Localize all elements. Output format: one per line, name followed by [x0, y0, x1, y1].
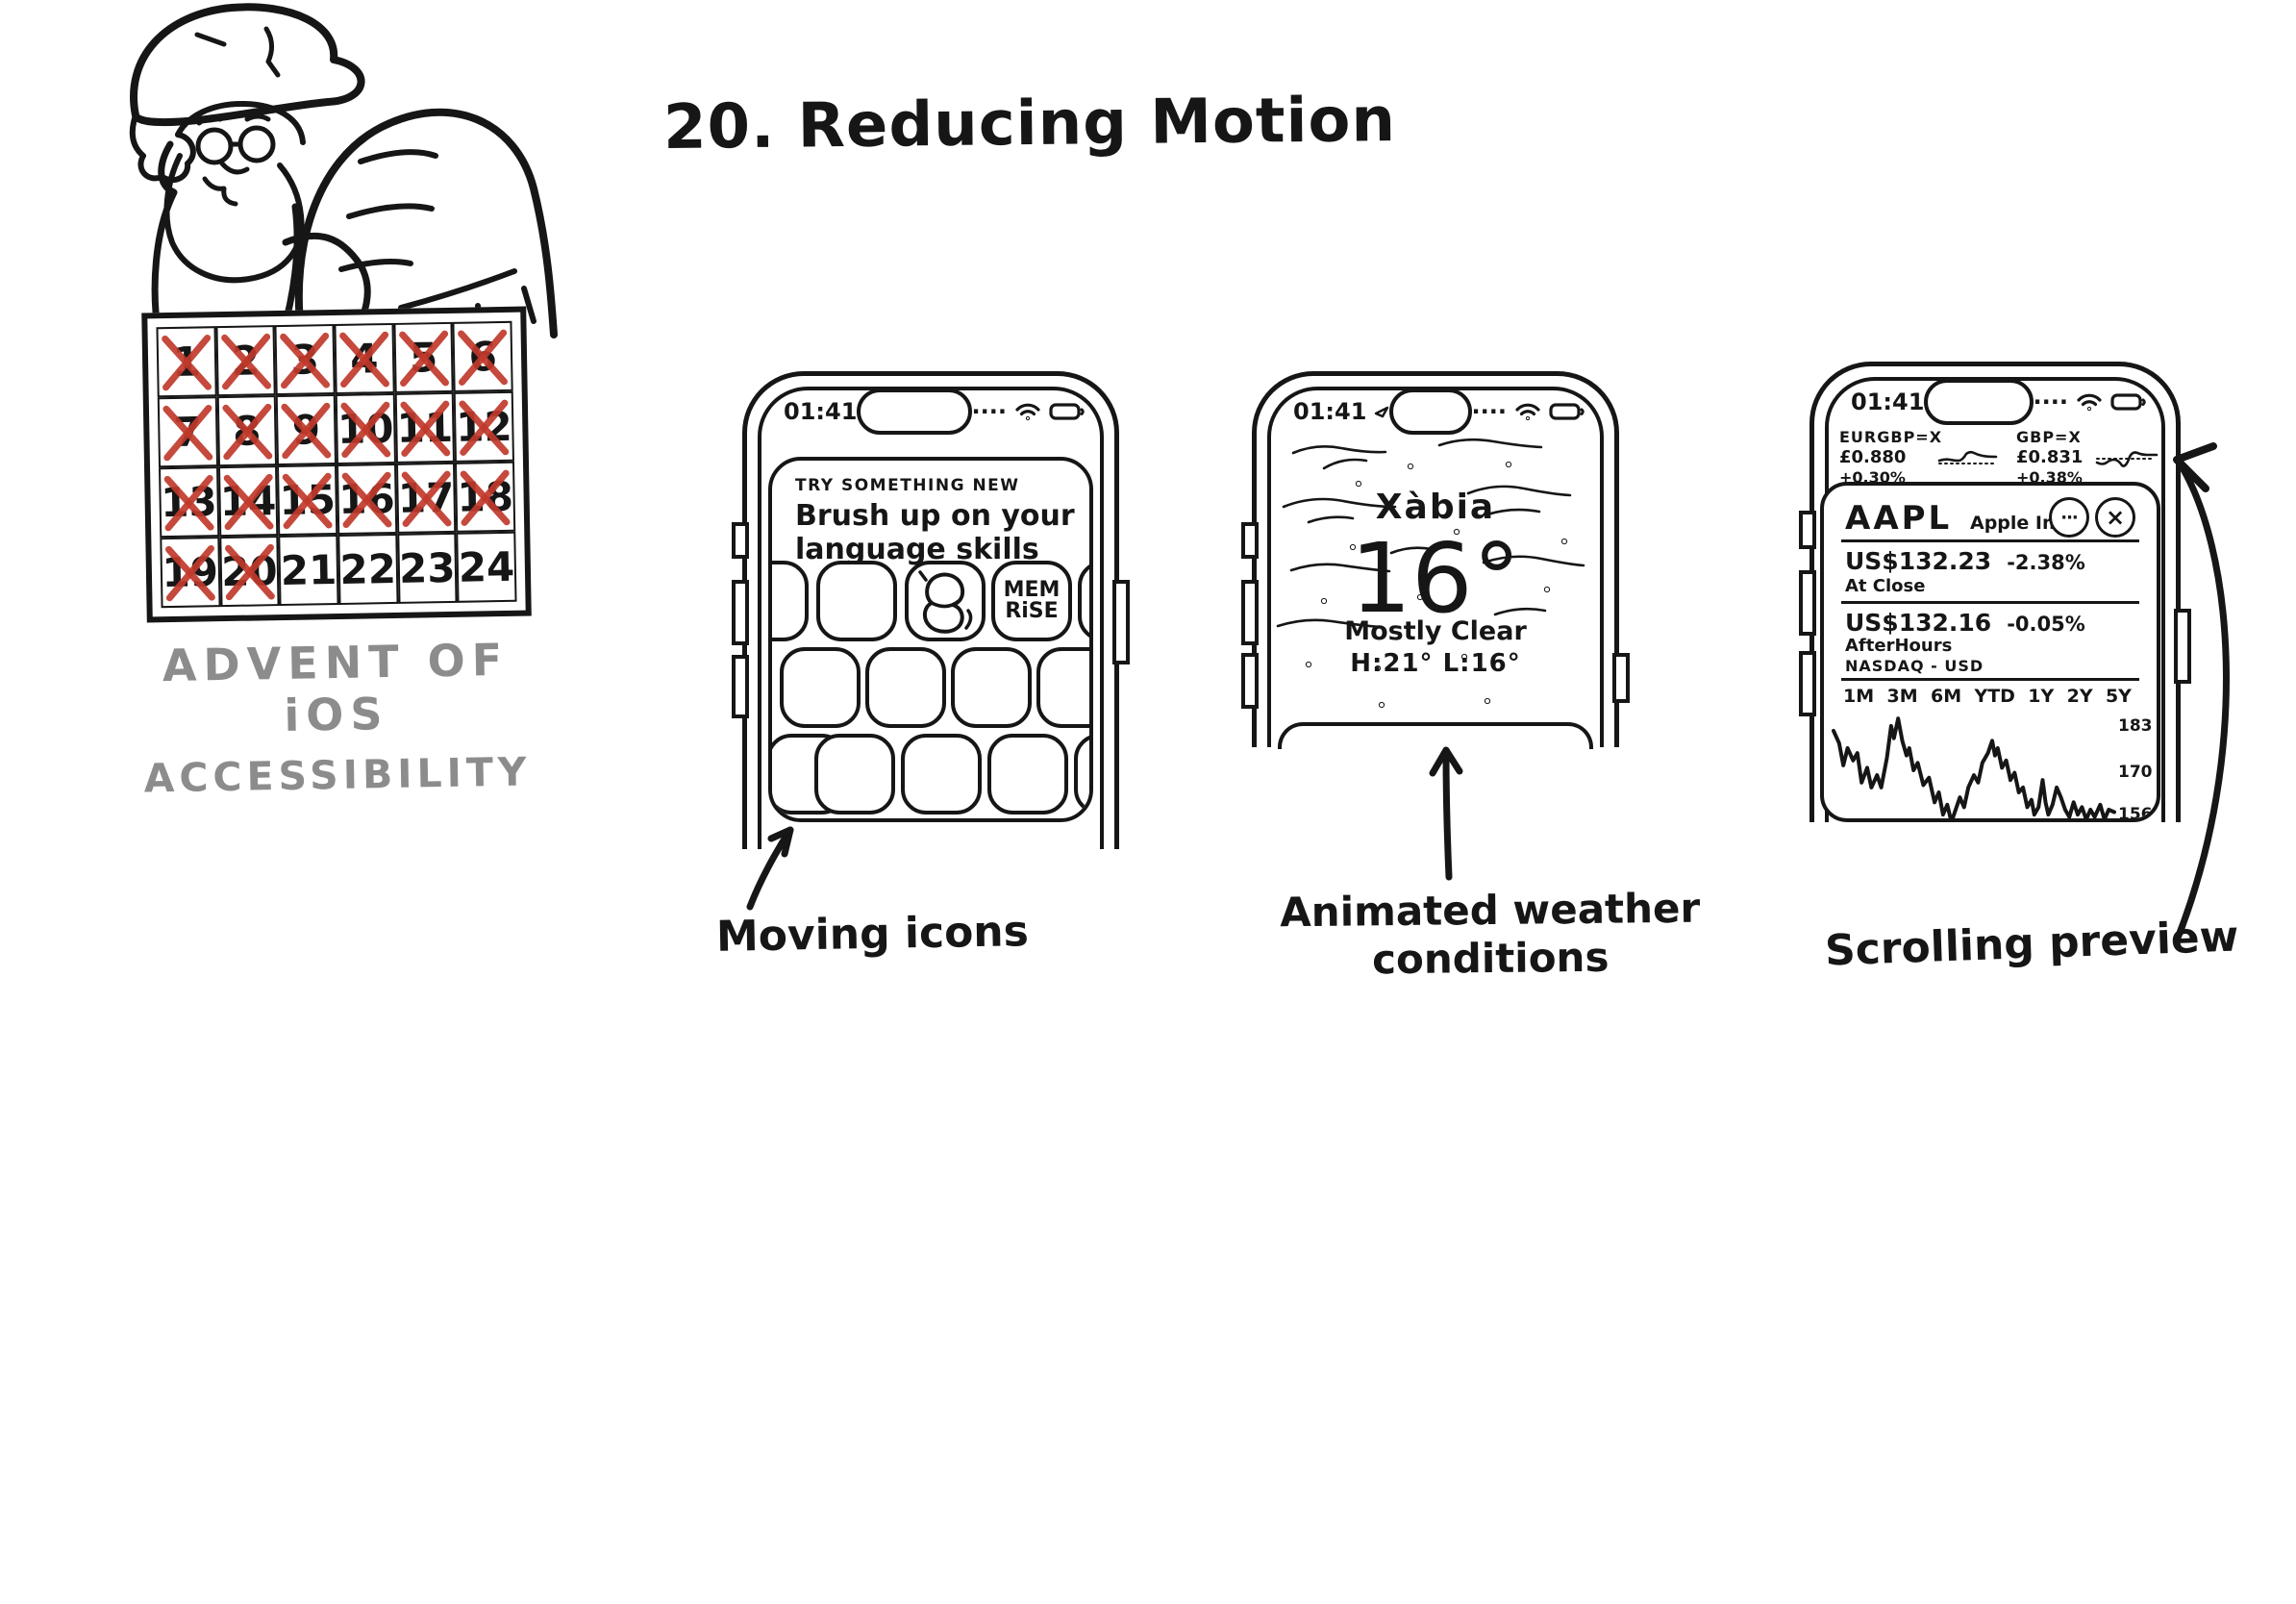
volume-down-button — [732, 655, 749, 718]
close-price-row: US$132.23-2.38% — [1845, 547, 2085, 575]
wifi-icon — [1014, 401, 1041, 422]
calendar-day: 2 — [215, 325, 276, 396]
app-icon — [987, 734, 1068, 815]
app-icon — [901, 734, 982, 815]
ticker-price: £0.831 — [2016, 447, 2083, 467]
caption-scrolling-preview: Scrolling preview — [1824, 913, 2239, 976]
page-title: 20. Reducing Motion — [663, 85, 1397, 163]
app-icon — [814, 734, 895, 815]
calendar-day: 19 — [160, 537, 220, 608]
branding: ADVENT OF iOS ACCESSIBILITY — [100, 633, 574, 803]
status-time: 01:41 — [1280, 398, 1389, 425]
calendar-day: 11 — [394, 392, 455, 464]
range-tab-2y: 2Y — [2067, 686, 2093, 707]
dynamic-island — [1924, 379, 2033, 425]
ticker-symbol: GBP=X — [2016, 428, 2083, 446]
status-time-text: 01:41 — [1293, 398, 1366, 425]
volume-down-button — [1799, 651, 1816, 716]
location-icon — [1374, 405, 1389, 418]
weather-condition: Mostly Clear — [1257, 616, 1614, 646]
close-change: -2.38% — [2007, 551, 2085, 574]
app-icon — [816, 561, 897, 641]
app-icon — [780, 647, 861, 728]
afterhours-change: -0.05% — [2007, 613, 2085, 636]
phone-weather: 01:41 ···· — [1252, 371, 1619, 747]
status-icons: ···· — [972, 401, 1091, 422]
calendar-day: 7 — [158, 396, 218, 467]
app-icon — [1036, 647, 1093, 728]
cellular-dots-icon: ···· — [972, 407, 1007, 416]
mute-switch — [1799, 511, 1816, 549]
status-time: 01:41 — [770, 398, 857, 425]
ellipsis-icon: ··· — [2060, 508, 2078, 528]
calendar-day: 8 — [216, 395, 277, 466]
calendar-day: 23 — [397, 533, 458, 604]
status-time: 01:41 — [1837, 388, 1924, 415]
power-button — [1112, 580, 1130, 664]
mute-switch — [732, 522, 749, 559]
calendar-day: 13 — [159, 466, 219, 538]
battery-icon — [1549, 402, 1585, 421]
calendar-day: 10 — [336, 393, 396, 464]
appstore-headline: Brush up on your language skills — [795, 499, 1075, 566]
cellular-dots-icon: ···· — [1472, 407, 1507, 416]
phone-stocks: 01:41 ···· EURGBP=X £0.880 +0.30% — [1809, 362, 2181, 822]
status-bar: 01:41 ···· — [770, 389, 1091, 434]
calendar-day: 18 — [455, 462, 515, 533]
ticker-symbol: EURGBP=X — [1839, 428, 1942, 446]
status-bar: 01:41 ···· — [1837, 380, 2153, 424]
wifi-icon — [1514, 401, 1541, 422]
weather-high-low: H:21° L:16° — [1257, 649, 1614, 678]
afterhours-price: US$132.16 — [1845, 609, 1991, 637]
close-icon: × — [2106, 504, 2125, 531]
advent-calendar-grid: 123456789101112131415161718192021222324 — [156, 321, 516, 608]
range-tabs: 1M3M6MYTD1Y2Y5Y — [1843, 686, 2132, 707]
arrow-icon — [733, 813, 819, 914]
app-icon — [1074, 734, 1093, 815]
ticker-gbp: GBP=X £0.831 +0.38% — [2016, 428, 2083, 487]
caption-animated-weather: Animated weather conditions — [1278, 885, 1702, 986]
volume-up-button — [1799, 570, 1816, 636]
appstore-headline-line1: Brush up on your — [795, 499, 1075, 533]
advent-calendar: 123456789101112131415161718192021222324 — [141, 307, 532, 623]
caption-animated-weather-line1: Animated weather — [1278, 885, 1701, 938]
calendar-day: 12 — [454, 391, 514, 463]
ticker-strip: EURGBP=X £0.880 +0.30% GBP=X £0.831 +0.3… — [1837, 428, 2157, 480]
phone-appstore: 01:41 ···· TRY SOMETHING NEW Brush up on… — [742, 371, 1119, 849]
calendar-day: 15 — [277, 464, 337, 536]
illustration-canvas: 123456789101112131415161718192021222324 … — [0, 0, 2296, 1604]
close-price: US$132.23 — [1845, 547, 1991, 575]
status-icons: ···· — [1472, 401, 1591, 422]
calendar-day: 6 — [453, 321, 513, 392]
stock-symbol: AAPL — [1845, 499, 1952, 538]
calendar-day: 5 — [393, 322, 454, 393]
aapl-chart-line — [1834, 718, 2114, 822]
ticker-eurgbp: EURGBP=X £0.880 +0.30% — [1839, 428, 1942, 487]
power-button — [1612, 653, 1630, 703]
app-icon — [951, 647, 1032, 728]
range-tab-5y: 5Y — [2106, 686, 2132, 707]
ticker-price: £0.880 — [1839, 447, 1942, 467]
dynamic-island — [857, 388, 971, 435]
memrise-icon-line1: MEM — [1004, 580, 1061, 601]
battery-icon — [2110, 392, 2147, 412]
range-tab-ytd: YTD — [1974, 686, 2015, 707]
app-icon — [1078, 561, 1093, 641]
calendar-day: 22 — [337, 534, 398, 605]
memrise-app-icon: MEM RiSE — [991, 561, 1072, 641]
range-tab-1y: 1Y — [2028, 686, 2054, 707]
calendar-day: 20 — [219, 536, 280, 607]
branding-line1: ADVENT OF iOS — [100, 633, 573, 745]
afterhours-price-row: US$132.16-0.05% — [1845, 609, 2085, 637]
calendar-day: 1 — [156, 326, 216, 397]
calendar-day: 4 — [334, 323, 394, 394]
chart-y-label: 183 — [2118, 716, 2159, 736]
calendar-day: 16 — [337, 464, 397, 535]
branding-line2: ACCESSIBILITY — [102, 748, 574, 803]
calendar-day: 17 — [396, 463, 457, 534]
wifi-icon — [2076, 391, 2103, 413]
afterhours-label: AfterHours — [1845, 636, 1952, 656]
app-icon — [768, 561, 809, 641]
range-tab-1m: 1M — [1843, 686, 1874, 707]
calendar-day: 21 — [279, 535, 339, 606]
calendar-day: 9 — [276, 394, 337, 465]
calendar-day: 14 — [218, 465, 279, 537]
memrise-bird-icon — [905, 561, 986, 641]
aapl-chart — [1834, 709, 2114, 822]
close-label: At Close — [1845, 576, 1925, 596]
battery-icon — [1049, 402, 1086, 421]
appstore-section-label: TRY SOMETHING NEW — [795, 476, 1020, 495]
divider — [1841, 539, 2139, 542]
caption-moving-icons: Moving icons — [716, 907, 1030, 962]
stock-card: AAPL Apple Inc. ··· × US$132.23-2.38% At… — [1820, 482, 2160, 822]
arrow-icon — [2154, 433, 2269, 957]
chart-y-label: 170 — [2118, 763, 2159, 782]
status-icons: ···· — [2034, 391, 2153, 413]
divider — [1841, 678, 2139, 681]
calendar-day: 3 — [275, 324, 336, 395]
weather-city: Xàbia — [1257, 488, 1614, 527]
volume-up-button — [732, 580, 749, 645]
calendar-day: 24 — [457, 532, 517, 603]
divider — [1841, 601, 2139, 604]
range-tab-6m: 6M — [1931, 686, 1961, 707]
close-button: × — [2095, 497, 2135, 538]
cellular-dots-icon: ···· — [2034, 397, 2068, 407]
more-options-button: ··· — [2049, 497, 2089, 538]
memrise-icon-line2: RiSE — [1005, 601, 1058, 622]
santa-illustration — [43, 0, 553, 351]
caption-animated-weather-line2: conditions — [1279, 933, 1702, 986]
range-tab-3m: 3M — [1886, 686, 1917, 707]
arrow-icon — [1423, 737, 1473, 883]
sparkline-icon — [2095, 445, 2159, 472]
sparkline-icon — [1937, 445, 1999, 470]
appstore-card: TRY SOMETHING NEW Brush up on your langu… — [768, 457, 1093, 822]
app-icon — [865, 647, 946, 728]
stock-exchange: NASDAQ - USD — [1845, 657, 1984, 675]
